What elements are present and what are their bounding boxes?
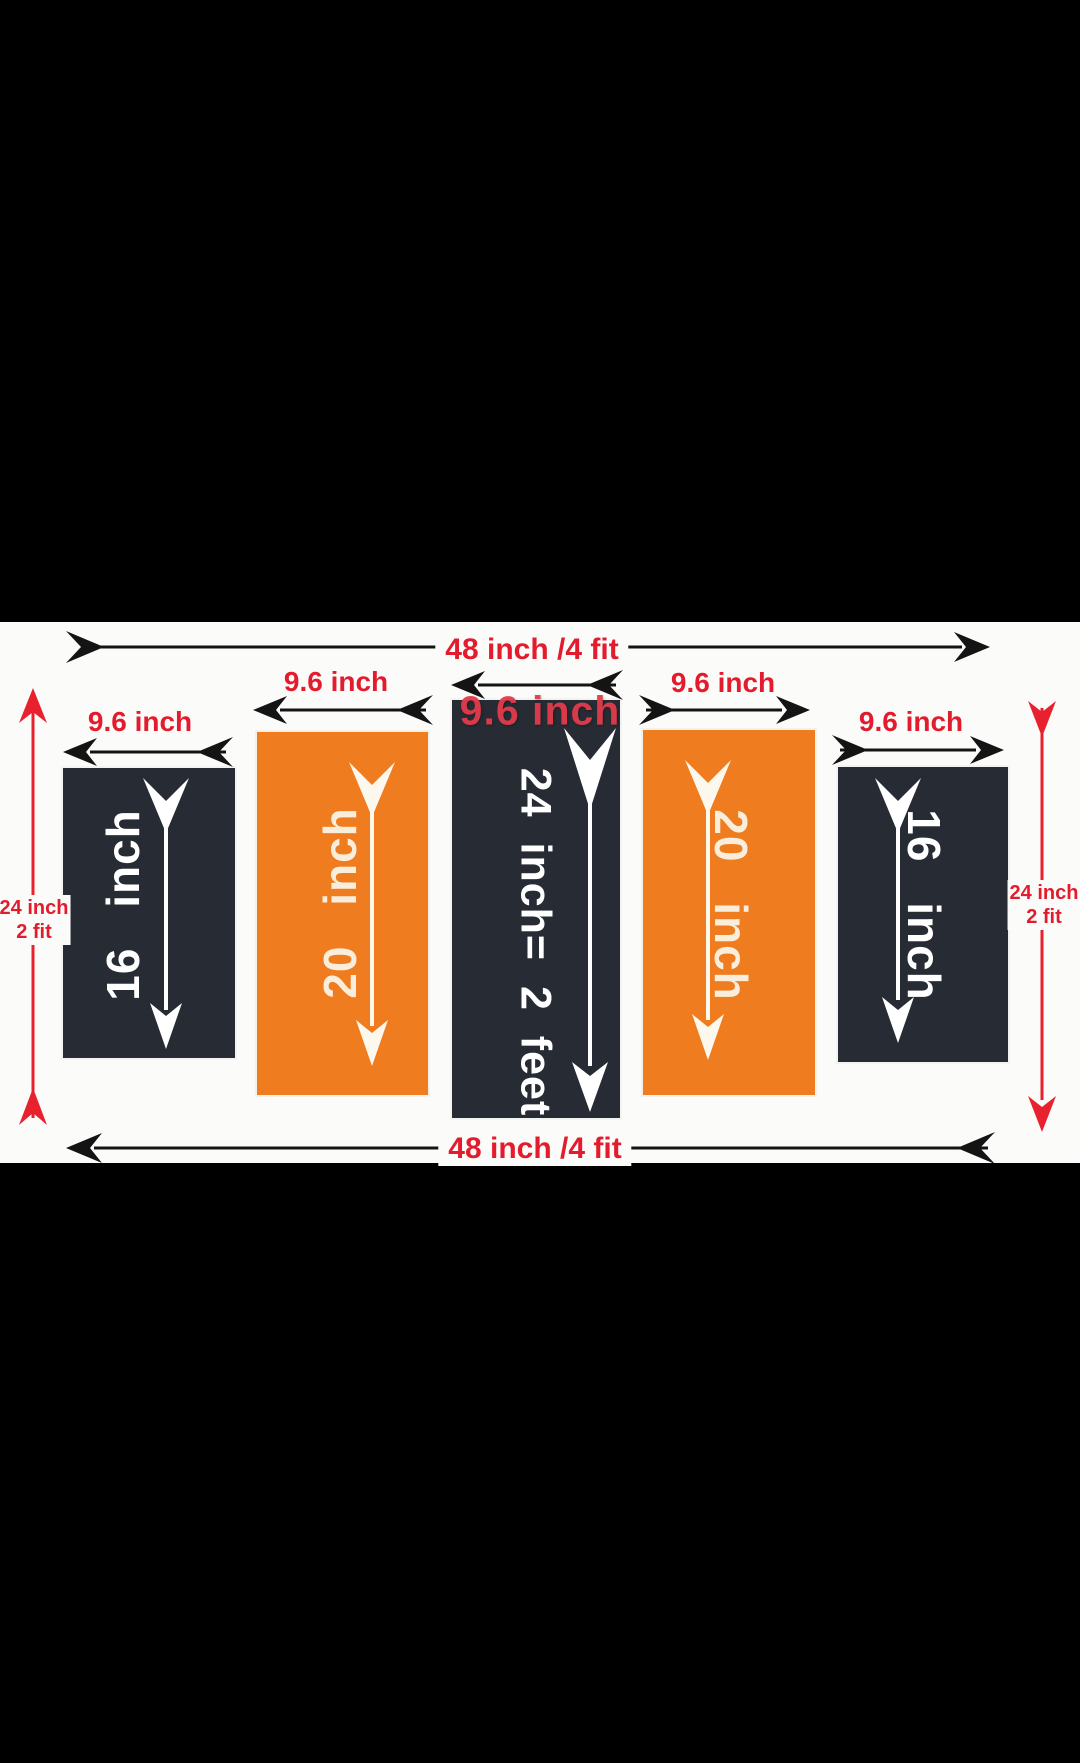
arrowhead-icon	[882, 997, 914, 1043]
panel-5-length-arrow	[875, 778, 921, 1043]
arrow-tail-icon	[832, 735, 868, 765]
panel-5-width-arrow	[832, 735, 1004, 765]
right-height-label-line1: 24 inch	[1010, 881, 1079, 905]
panel-3-length-arrow	[564, 728, 616, 1112]
arrow-tail-icon	[875, 778, 921, 833]
arrowhead-icon	[572, 1062, 608, 1112]
arrow-tail-icon	[1028, 701, 1056, 737]
left-height-label-line2: 2 fit	[0, 920, 68, 944]
top-width-label: 48 inch /4 fit	[435, 633, 628, 667]
arrow-tail-icon	[639, 695, 675, 725]
arrowhead-icon	[1028, 1096, 1056, 1132]
panel-1-length-arrow	[143, 778, 189, 1049]
arrow-tail-icon	[66, 631, 104, 663]
arrow-tail-icon	[349, 762, 395, 817]
right-height-label-line2: 2 fit	[1010, 905, 1079, 929]
arrow-tail-icon	[19, 1088, 47, 1125]
arrows-overlay	[0, 0, 1080, 1763]
arrow-tail-icon	[685, 760, 731, 815]
arrow-tail-icon	[957, 1132, 995, 1164]
left-height-label: 24 inch 2 fit	[0, 895, 70, 945]
panel-3-width-label-watermark: 9.6 inch	[460, 688, 621, 735]
arrow-tail-icon	[397, 695, 433, 725]
left-height-label-line1: 24 inch	[0, 896, 68, 920]
arrowhead-icon	[356, 1020, 388, 1066]
panel-4-width-label: 9.6 inch	[671, 667, 775, 699]
panel-1-width-label: 9.6 inch	[88, 706, 192, 738]
panel-4-length-arrow	[685, 760, 731, 1060]
arrow-tail-icon	[143, 778, 189, 833]
panel-2-width-arrow	[253, 695, 433, 725]
bottom-width-label: 48 inch /4 fit	[438, 1132, 631, 1166]
arrowhead-icon	[692, 1014, 724, 1060]
right-height-label: 24 inch 2 fit	[1008, 880, 1080, 930]
panel-4-width-arrow	[639, 695, 810, 725]
panel-2-length-arrow	[349, 762, 395, 1066]
diagram-canvas: 16 inch 20 inch 24 inch= 2 feet 20 inch …	[0, 0, 1080, 1763]
panel-2-width-label: 9.6 inch	[284, 666, 388, 698]
panel-1-width-arrow	[63, 737, 233, 767]
panel-5-width-label: 9.6 inch	[859, 706, 963, 738]
arrow-tail-icon	[197, 737, 233, 767]
arrow-tail-icon	[564, 728, 616, 810]
